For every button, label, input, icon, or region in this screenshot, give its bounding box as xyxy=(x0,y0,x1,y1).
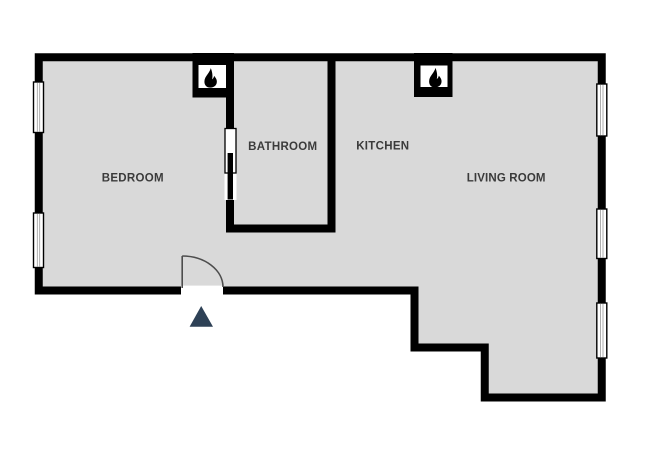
svg-text:BATHROOM: BATHROOM xyxy=(248,141,317,153)
svg-text:BEDROOM: BEDROOM xyxy=(102,172,164,184)
svg-text:KITCHEN: KITCHEN xyxy=(356,140,409,152)
svg-text:LIVING ROOM: LIVING ROOM xyxy=(467,173,546,185)
